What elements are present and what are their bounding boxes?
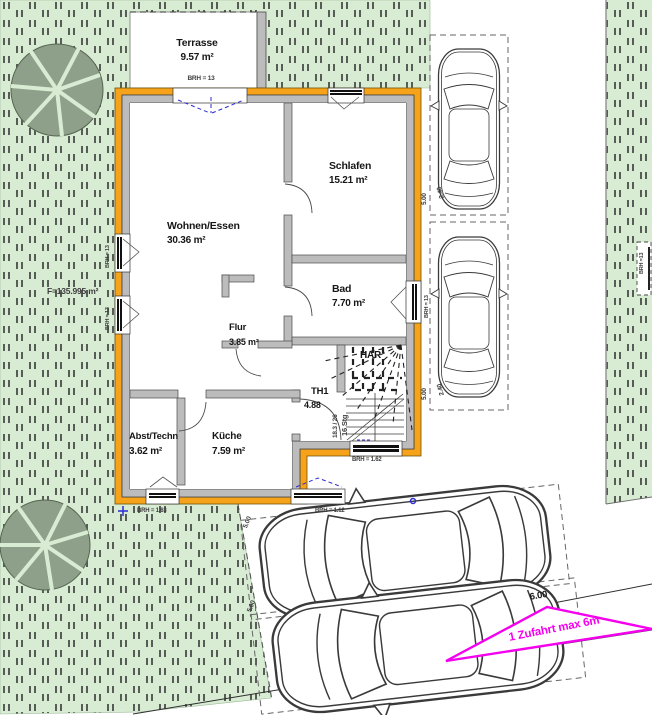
area-label-flur: 3.85 m²: [229, 338, 259, 347]
room-label-terrasse: Terrasse: [176, 38, 217, 49]
sill-label-terrace: BRH = 13: [187, 76, 214, 83]
sill-label-bad: BRH = 13: [425, 295, 431, 318]
room-label-abst: Abst/Techn: [129, 432, 178, 442]
sill-label-left-upper: BRH = 13: [106, 245, 112, 268]
area-label-terrasse: 9.57 m²: [180, 53, 213, 63]
site-plan-drawing: [0, 0, 652, 715]
sill-label-kueche: BRH = 1.12: [315, 508, 345, 514]
sill-label-stair: BRH = 1.62: [352, 457, 382, 463]
tree-icon: [0, 500, 90, 590]
tree-icon: [11, 44, 103, 136]
parking-length-label: 5.00: [422, 193, 429, 205]
parking-length-label: 5.00: [422, 388, 429, 400]
site-plan-canvas: Terrasse 9.57 m² BRH = 13 Wohnen/Essen 3…: [0, 0, 652, 715]
area-label-th1: 4.88: [304, 401, 321, 410]
sill-label-left-lower: BRH = 13: [106, 307, 112, 330]
room-label-wohnen: Wohnen/Essen: [167, 221, 240, 232]
room-label-th1: TH1: [311, 387, 328, 397]
room-label-schlafen: Schlafen: [329, 161, 371, 172]
stair-step-label: 18.3 / 26: [333, 415, 340, 439]
room-label-har: HAR: [360, 351, 381, 361]
room-label-kueche: Küche: [212, 432, 242, 442]
room-label-bad: Bad: [332, 284, 351, 295]
area-label-kueche: 7.59 m²: [212, 447, 245, 457]
sill-label-abst: BRH = 1.63: [137, 508, 167, 514]
stair-count-label: 16 Stg: [341, 415, 349, 436]
room-label-flur: Flur: [229, 323, 246, 333]
area-label-bad: 7.70 m²: [332, 299, 365, 309]
parcel-area-label: F=135.995 m²: [47, 287, 98, 296]
car-icon: [431, 237, 507, 397]
area-label-wohnen: 30.36 m²: [167, 236, 205, 246]
area-label-abst: 3.62 m²: [129, 447, 162, 457]
area-label-schlafen: 15.21 m²: [329, 176, 367, 186]
sill-label-neighbor: BRH =13: [640, 253, 646, 274]
